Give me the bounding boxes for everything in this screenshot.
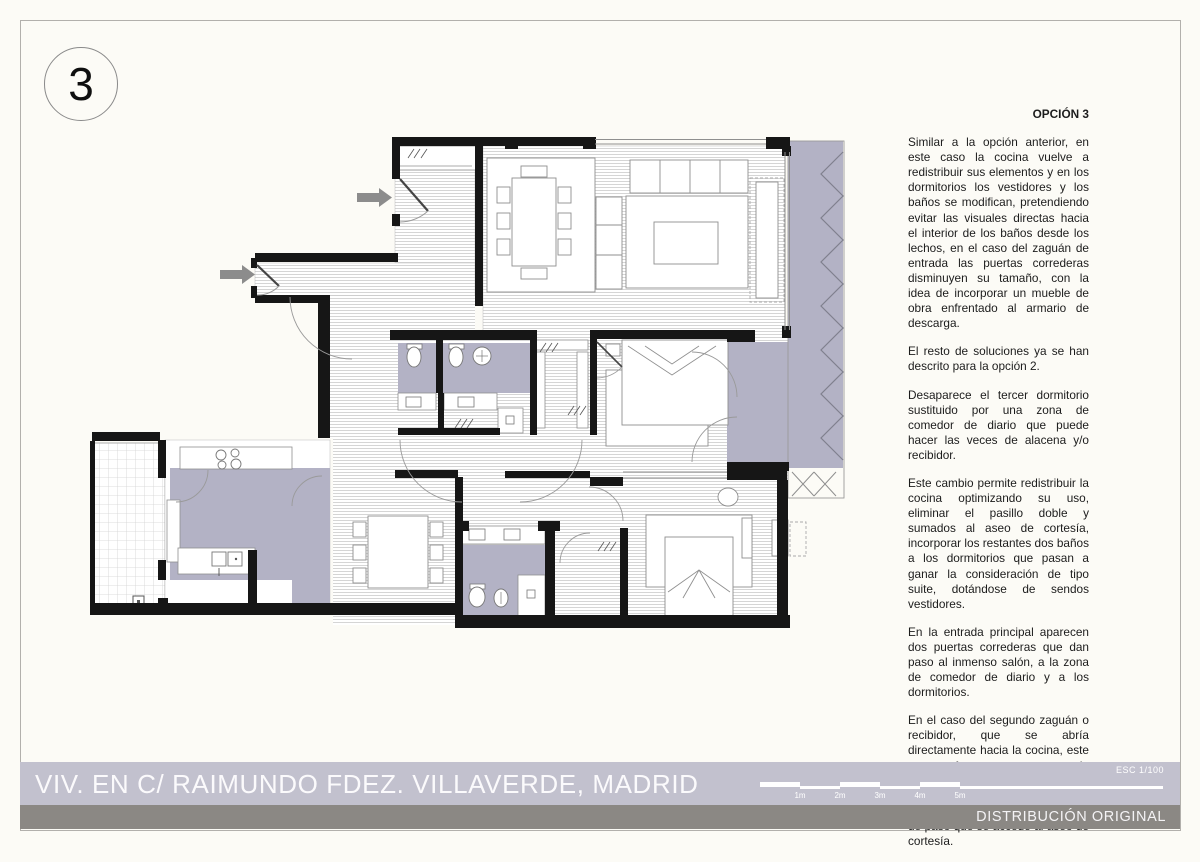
scale-label: ESC 1/100: [1116, 765, 1164, 775]
terrace-door-leaves: [792, 472, 836, 496]
bed-icon: [665, 537, 733, 625]
scale-tick: 4m: [908, 791, 932, 800]
project-title: VIV. EN C/ RAIMUNDO FDEZ. VILLAVERDE, MA…: [35, 762, 699, 805]
variant-bar: DISTRIBUCIÓN ORIGINAL: [20, 805, 1180, 829]
toilet-icon: [449, 347, 463, 367]
notes-paragraph: Similar a la opción anterior, en este ca…: [908, 135, 1089, 331]
washbasin-icon: [458, 397, 474, 407]
scale-tick: 3m: [868, 791, 892, 800]
scale-tick: 1m: [788, 791, 812, 800]
kitchen-sink-icon: [212, 552, 226, 566]
shower-icon: [518, 575, 545, 617]
notes-column: OPCIÓN 3 Similar a la opción anterior, e…: [908, 107, 1089, 862]
entrance-arrow-icon: [357, 188, 392, 207]
floor-plan: [85, 125, 875, 685]
title-bar: VIV. EN C/ RAIMUNDO FDEZ. VILLAVERDE, MA…: [20, 762, 1180, 805]
scale-tick: 5m: [948, 791, 972, 800]
notes-title: OPCIÓN 3: [908, 107, 1089, 122]
kitchen: [165, 440, 330, 613]
toilet-icon: [469, 587, 485, 607]
notes-paragraph: El resto de soluciones ya se han descrit…: [908, 344, 1089, 374]
patio: [92, 443, 165, 613]
shower-icon: [498, 408, 523, 433]
dining-room-furniture: [487, 158, 595, 292]
option-number-badge: 3: [44, 47, 118, 121]
toilet-icon: [407, 347, 421, 367]
table-icon: [368, 516, 428, 588]
notes-paragraph: Desaparece el tercer dormitorio sustitui…: [908, 388, 1089, 463]
graphic-scale-bar: 1m 2m 3m 4m 5m: [760, 782, 1165, 798]
option-number: 3: [68, 57, 94, 111]
dining-table-icon: [512, 178, 556, 266]
chair-icon: [718, 488, 738, 506]
coffee-table-icon: [654, 222, 718, 264]
variant-label: DISTRIBUCIÓN ORIGINAL: [976, 805, 1166, 829]
sideboard-icon: [596, 197, 622, 289]
washbasin-icon: [469, 529, 485, 540]
notes-paragraph: En la entrada principal aparecen dos pue…: [908, 625, 1089, 700]
plan-sheet-page: { "badge": { "number": "3" }, "notes": {…: [0, 0, 1200, 848]
notes-paragraph: Este cambio permite redistribuir la coci…: [908, 476, 1089, 612]
sofa-icon: [630, 160, 748, 193]
washbasin-icon: [504, 529, 520, 540]
entrance-arrow-icon: [220, 265, 255, 284]
floor-plan-drawing: [85, 125, 875, 685]
scale-tick: 2m: [828, 791, 852, 800]
washbasin-icon: [406, 397, 421, 407]
bathroom-2: [461, 526, 545, 617]
